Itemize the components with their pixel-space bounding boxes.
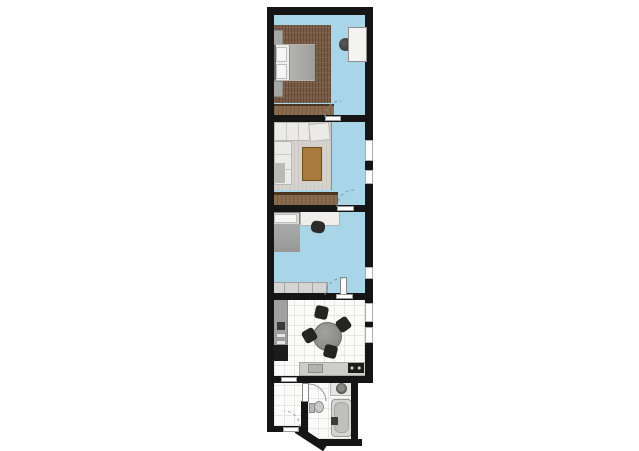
door-arc-overlay: [0, 0, 639, 451]
bathroom-door-arc: [309, 384, 326, 401]
smallbedroom-door-arc: [325, 278, 343, 296]
floor-plan-canvas: [0, 0, 639, 451]
entry-door-arc: [284, 411, 300, 427]
bedroom-door-arc: [325, 101, 341, 117]
hall-door-arc: [337, 190, 354, 207]
